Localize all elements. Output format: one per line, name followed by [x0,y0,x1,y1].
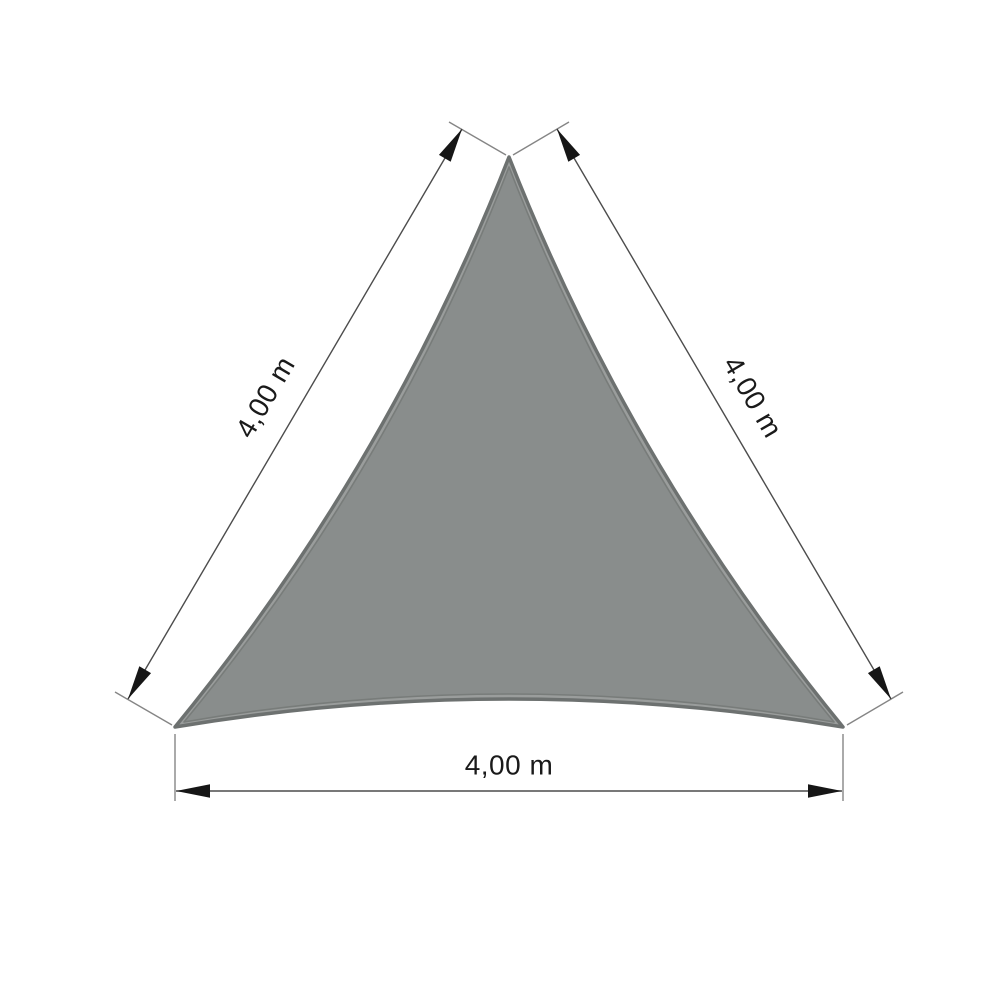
shade-sail [175,157,843,727]
dimension-label-bottom: 4,00 m [465,749,554,780]
dimension-label-left: 4,00 m [229,351,301,443]
diagram-canvas: 4,00 m 4,00 m 4,00 m [0,0,1000,1000]
dimension-label-right: 4,00 m [717,351,789,443]
extension-line-apex-left [449,122,506,155]
dimension-bottom: 4,00 m [175,734,843,801]
extension-line-bottomright-right [847,692,903,725]
sail-fabric-seam [184,167,834,722]
extension-line-bottomleft-left [115,692,172,725]
shade-sail-dimension-diagram: 4,00 m 4,00 m 4,00 m [0,0,1000,1000]
extension-line-apex-right [513,122,569,155]
